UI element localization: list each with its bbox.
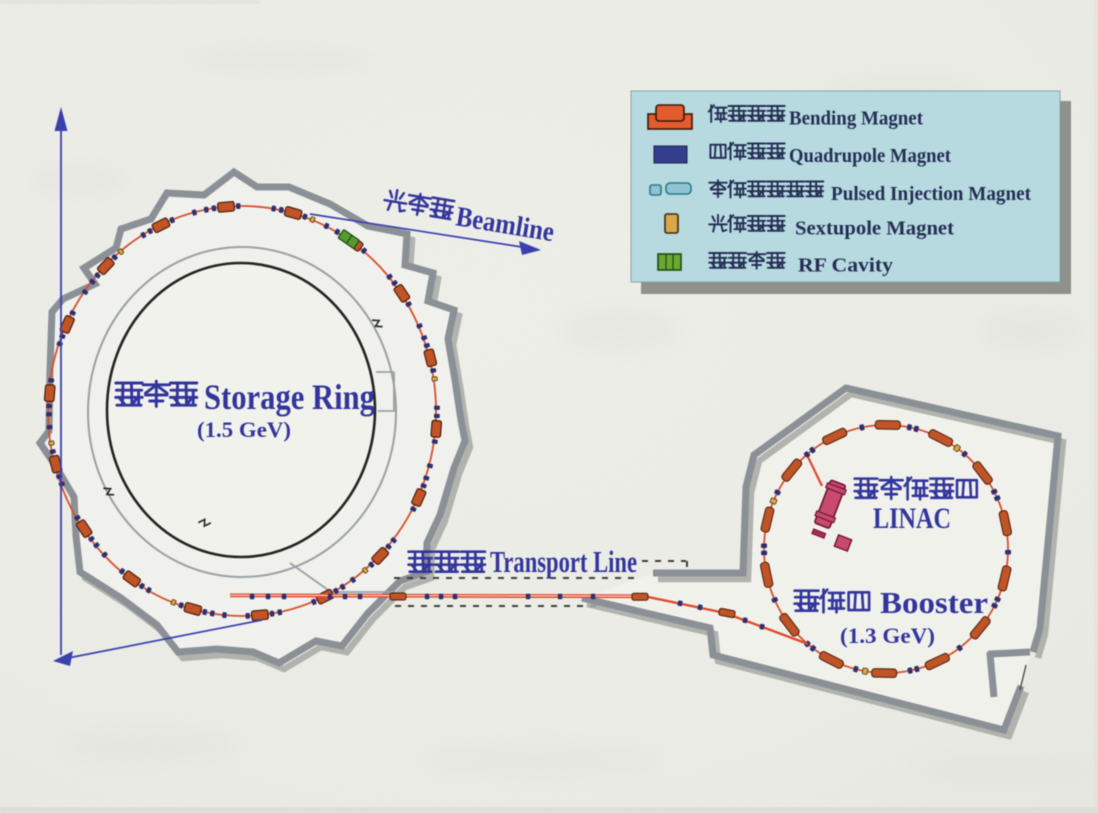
svg-text:Sextupole Magnet: Sextupole Magnet [795, 218, 954, 240]
svg-text:Transport Line: Transport Line [490, 544, 637, 579]
svg-text:Booster: Booster [880, 585, 988, 620]
svg-text:(1.5 GeV): (1.5 GeV) [197, 417, 291, 442]
svg-text:RF Cavity: RF Cavity [798, 255, 893, 277]
svg-text:Quadrupole Magnet: Quadrupole Magnet [789, 145, 951, 167]
svg-text:(1.3 GeV): (1.3 GeV) [840, 623, 935, 648]
svg-text:Bending Magnet: Bending Magnet [789, 108, 923, 130]
svg-text:LINAC: LINAC [873, 502, 951, 535]
svg-text:Pulsed Injection Magnet: Pulsed Injection Magnet [831, 183, 1031, 205]
svg-text:Storage Ring: Storage Ring [204, 377, 375, 417]
